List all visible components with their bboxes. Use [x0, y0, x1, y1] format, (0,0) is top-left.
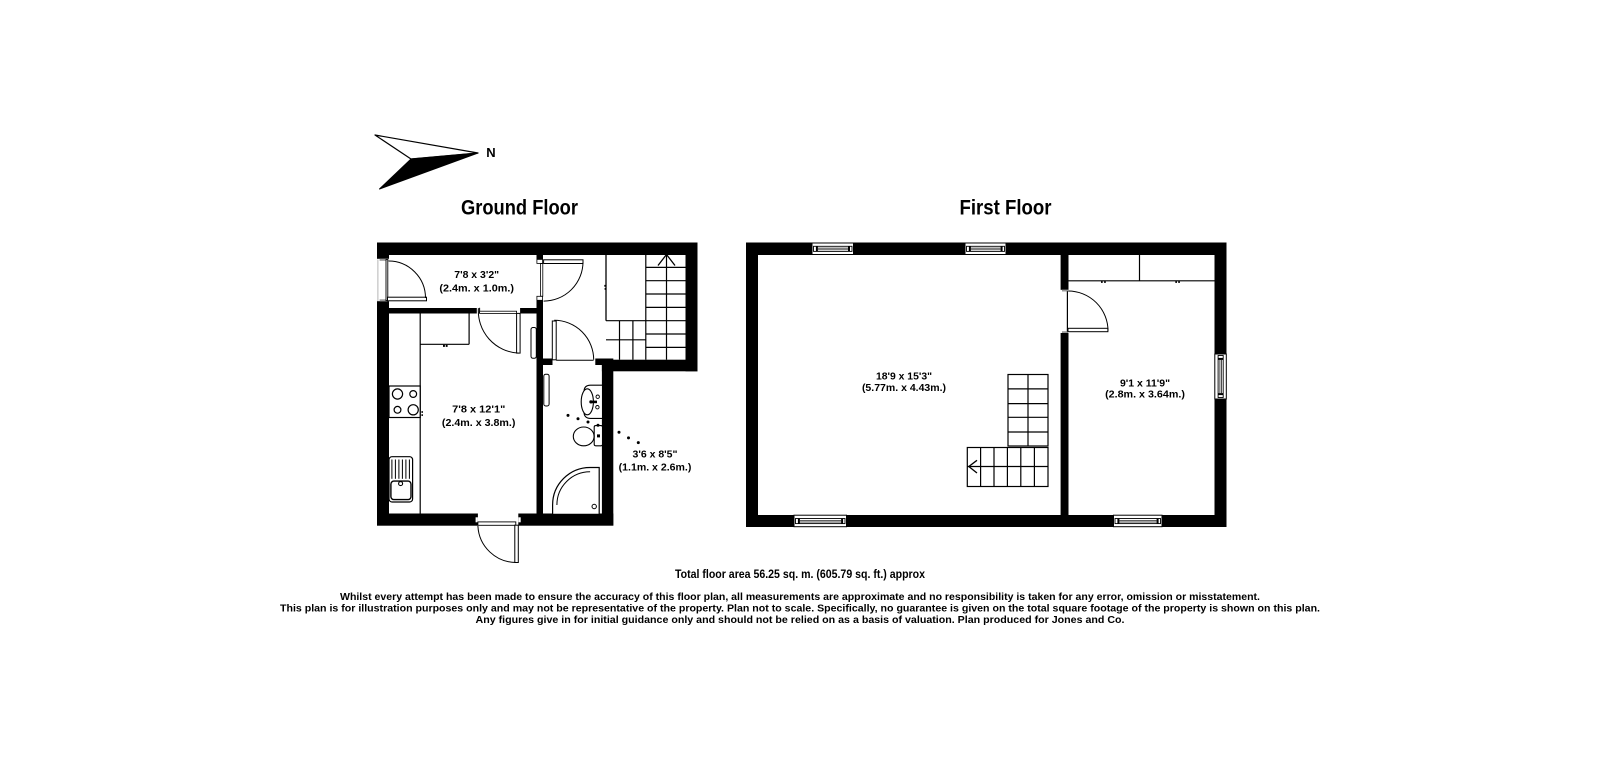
svg-text:18'9 x 15'3": 18'9 x 15'3" [876, 371, 932, 383]
svg-text:(5.77m. x 4.43m.): (5.77m. x 4.43m.) [862, 382, 946, 394]
svg-text:7'8 x 12'1": 7'8 x 12'1" [452, 404, 505, 416]
svg-text:(2.4m. x 3.8m.): (2.4m. x 3.8m.) [442, 417, 516, 429]
svg-text:7'8 x 3'2": 7'8 x 3'2" [454, 269, 499, 281]
svg-text:First Floor: First Floor [960, 197, 1052, 220]
svg-text:Whilst every attempt has been: Whilst every attempt has been made to en… [340, 592, 1260, 603]
svg-text:Any figures give in for initia: Any figures give in for initial guidance… [476, 615, 1125, 626]
svg-text:(2.8m. x 3.64m.): (2.8m. x 3.64m.) [1105, 389, 1185, 401]
svg-text:Total floor area 56.25 sq. m.: Total floor area 56.25 sq. m. (605.79 sq… [675, 567, 925, 581]
svg-text:N: N [486, 145, 495, 160]
svg-text:This plan is for illustration: This plan is for illustration purposes o… [280, 604, 1320, 615]
svg-text:(1.1m. x 2.6m.): (1.1m. x 2.6m.) [619, 462, 692, 474]
svg-text:3'6 x 8'5": 3'6 x 8'5" [633, 448, 678, 460]
svg-text:9'1 x 11'9": 9'1 x 11'9" [1120, 377, 1170, 389]
svg-text:(2.4m. x 1.0m.): (2.4m. x 1.0m.) [439, 282, 514, 294]
svg-text:Ground Floor: Ground Floor [461, 197, 578, 220]
